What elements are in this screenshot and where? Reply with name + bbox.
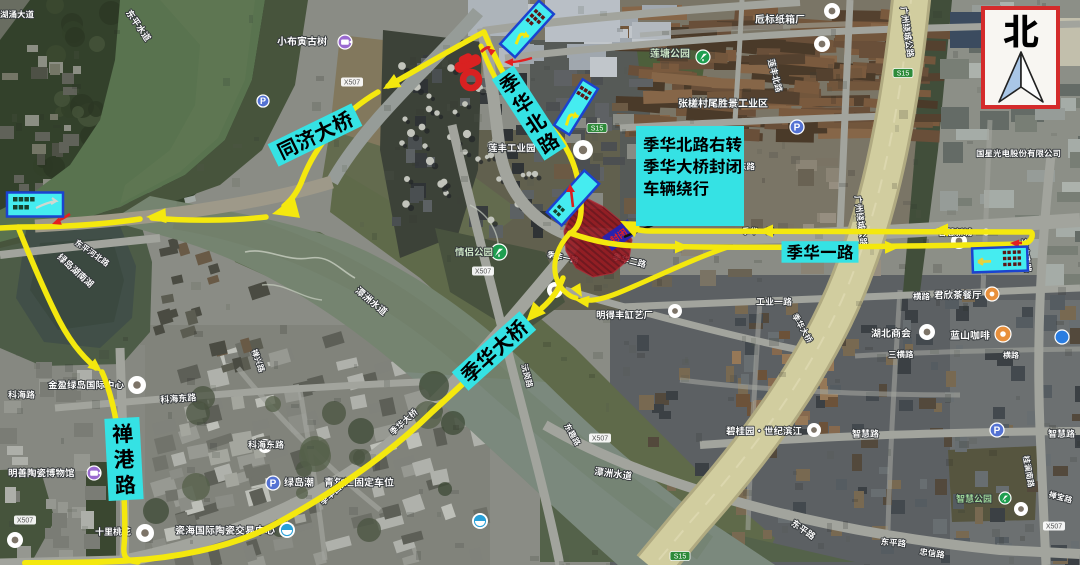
svg-text:P: P <box>794 123 801 134</box>
svg-text:P: P <box>270 479 277 490</box>
svg-text:P: P <box>994 426 1001 437</box>
svg-text:X507: X507 <box>475 269 491 276</box>
svg-text:X507: X507 <box>1046 524 1062 531</box>
svg-text:P: P <box>260 96 266 106</box>
svg-text:S15: S15 <box>674 554 687 561</box>
svg-text:S15: S15 <box>591 126 604 133</box>
svg-text:S15: S15 <box>897 71 910 78</box>
svg-text:X507: X507 <box>344 80 360 87</box>
svg-text:X507: X507 <box>17 518 33 525</box>
svg-text:X507: X507 <box>592 436 608 443</box>
